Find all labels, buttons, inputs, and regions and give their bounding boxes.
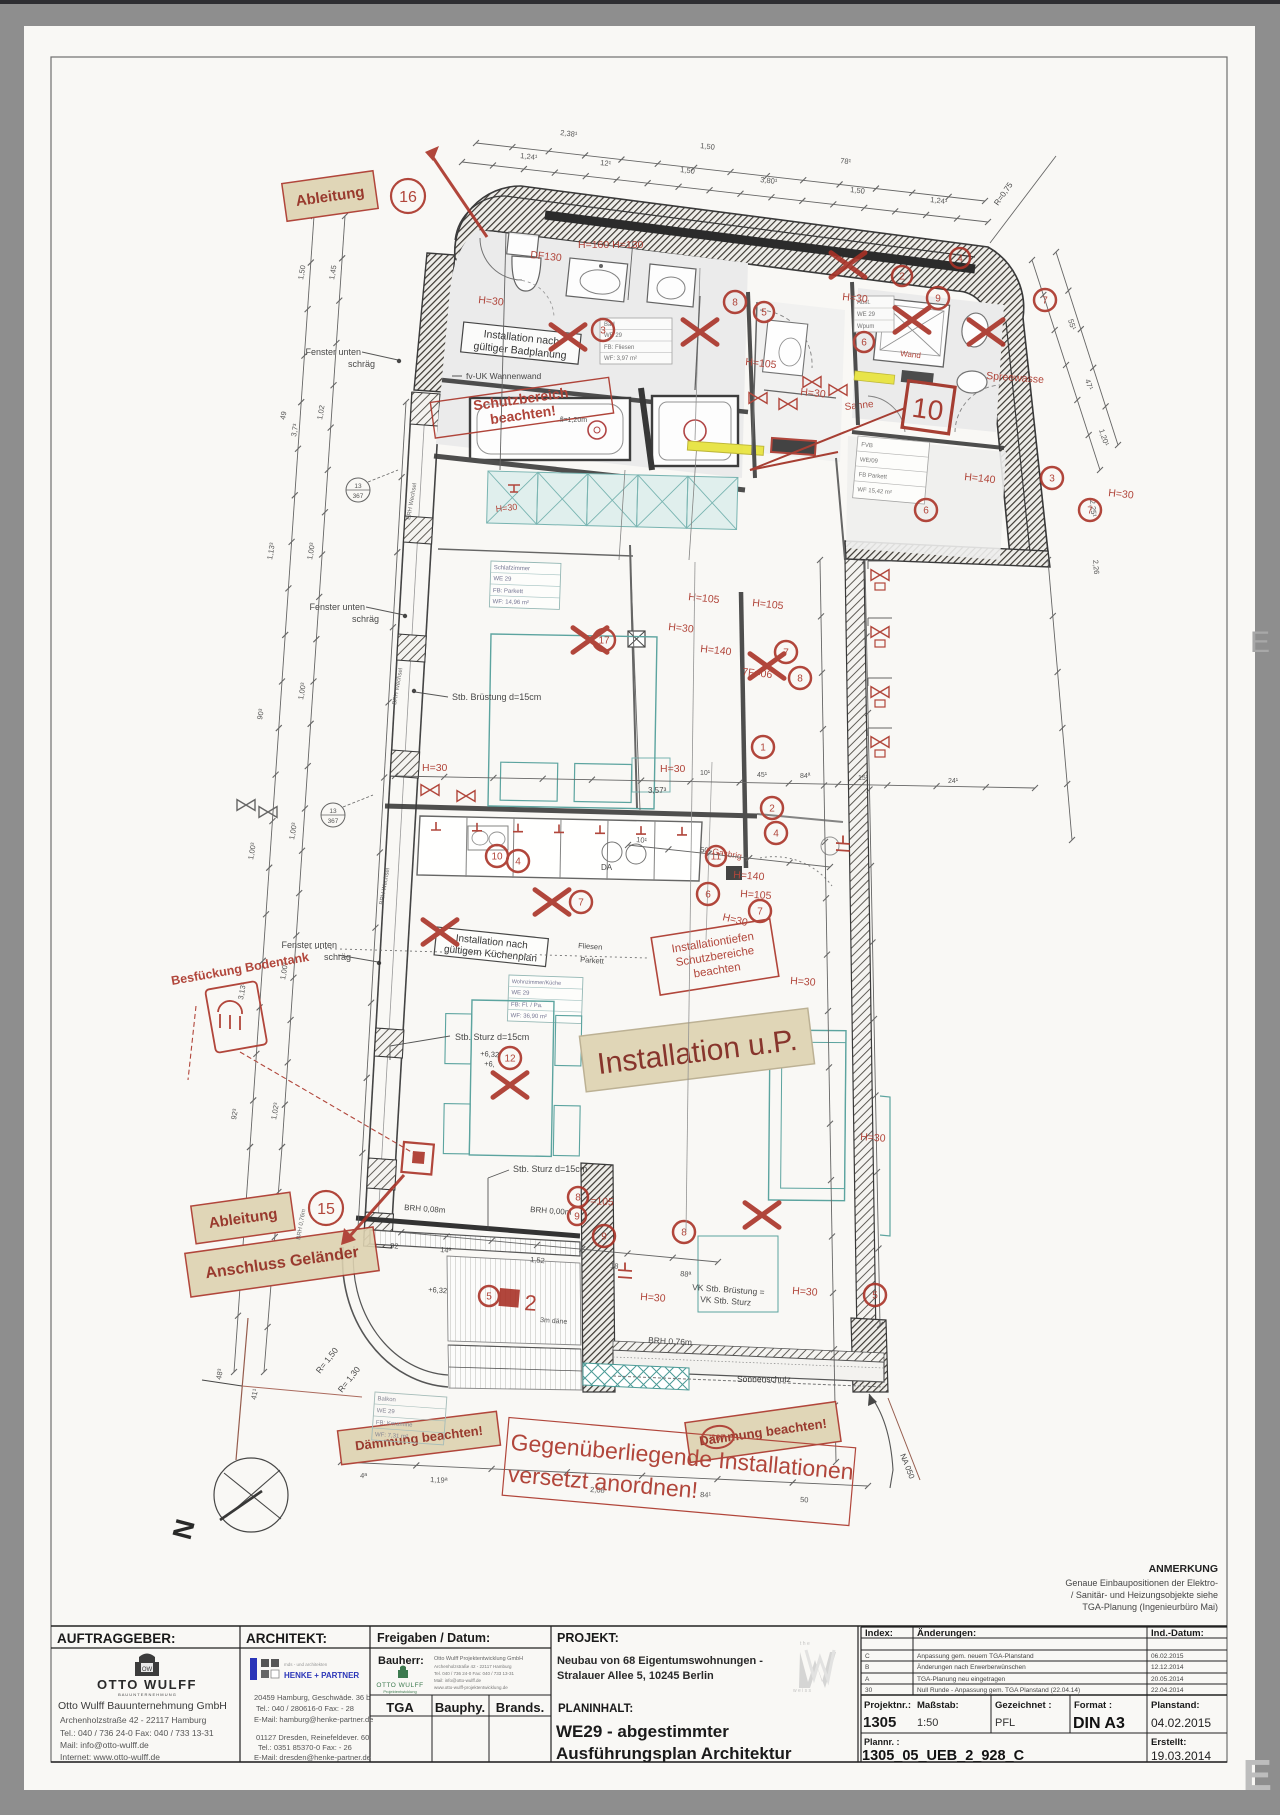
svg-text:1,50: 1,50	[700, 141, 716, 152]
svg-text:1,00³: 1,00³	[296, 681, 308, 700]
svg-text:H=160 H=130: H=160 H=130	[578, 239, 644, 251]
svg-text:1,00³: 1,00³	[246, 841, 258, 860]
svg-text:2: 2	[524, 1290, 538, 1316]
svg-text:1,50: 1,50	[680, 165, 696, 176]
svg-text:Brands.: Brands.	[496, 1700, 544, 1715]
svg-text:18: 18	[610, 1261, 619, 1271]
svg-text:1: 1	[760, 743, 766, 754]
svg-text:OW: OW	[142, 1667, 153, 1673]
svg-text:6: 6	[923, 506, 929, 517]
svg-text:DIN A3: DIN A3	[1073, 1715, 1125, 1732]
svg-text:6: 6	[705, 890, 711, 901]
svg-text:WE 29: WE 29	[511, 990, 530, 997]
svg-text:Neubau von 68 Eigentumswohnung: Neubau von 68 Eigentumswohnungen -	[557, 1655, 763, 1667]
svg-text:10¹: 10¹	[636, 835, 648, 845]
svg-text:84ª: 84ª	[800, 773, 811, 780]
svg-text:Änderungen nach Erwerberwünsch: Änderungen nach Erwerberwünschen	[917, 1663, 1026, 1671]
svg-text:FVB: FVB	[861, 442, 873, 449]
svg-text:PFL: PFL	[995, 1717, 1015, 1729]
svg-text:367: 367	[328, 818, 339, 825]
svg-text:www.otto-wulff-projektentwickl: www.otto-wulff-projektentwicklung.de	[434, 1685, 508, 1690]
svg-text:10: 10	[491, 852, 503, 863]
svg-text:H=140: H=140	[700, 643, 732, 658]
svg-text:Sonnenschutz: Sonnenschutz	[737, 1374, 791, 1384]
svg-text:H=30: H=30	[660, 763, 686, 775]
svg-text:Index:: Index:	[865, 1628, 893, 1639]
svg-text:47¹: 47¹	[1083, 378, 1095, 392]
svg-text:Ind.-Datum:: Ind.-Datum:	[1151, 1628, 1204, 1639]
svg-text:Bauherr:: Bauherr:	[378, 1655, 424, 1667]
svg-text:12¹: 12¹	[600, 158, 612, 168]
svg-text:3,80¹: 3,80¹	[760, 175, 779, 186]
svg-text:3: 3	[1049, 474, 1055, 485]
svg-text:7: 7	[783, 648, 789, 659]
svg-text:H=30: H=30	[422, 762, 448, 774]
svg-text:2: 2	[899, 272, 905, 283]
svg-text:13: 13	[354, 483, 362, 490]
svg-text:01127 Dresden, Reinefeldever.: 01127 Dresden, Reinefeldever. 60	[256, 1733, 369, 1742]
svg-text:AUFTRAGGEBER:: AUFTRAGGEBER:	[57, 1631, 176, 1646]
svg-text:PLANINHALT:: PLANINHALT:	[558, 1703, 633, 1715]
svg-text:Freigaben / Datum:: Freigaben / Datum:	[377, 1631, 490, 1645]
svg-text:E: E	[1243, 1751, 1272, 1800]
svg-text:3: 3	[600, 326, 606, 337]
svg-text:B: B	[865, 1664, 869, 1671]
svg-text:19.03.2014: 19.03.2014	[1151, 1749, 1211, 1763]
svg-text:41¹: 41¹	[249, 1388, 260, 1401]
svg-text:/ Sanitär- und Heizungsobjekte: / Sanitär- und Heizungsobjekte siehe	[1071, 1590, 1218, 1600]
svg-text:20459 Hamburg, Geschwäde. 36 b: 20459 Hamburg, Geschwäde. 36 b	[254, 1693, 370, 1702]
svg-text:OTTO WULFF: OTTO WULFF	[376, 1682, 423, 1689]
svg-text:3,57³: 3,57³	[648, 786, 667, 795]
svg-text:NA 050: NA 050	[898, 1452, 916, 1480]
svg-text:78¹: 78¹	[840, 156, 852, 166]
svg-text:Wpum: Wpum	[857, 324, 874, 330]
svg-text:WE 29: WE 29	[493, 576, 512, 583]
svg-text:DA: DA	[601, 863, 613, 872]
svg-text:Fenster unten: Fenster unten	[281, 940, 337, 950]
svg-text:Format :: Format :	[1074, 1700, 1112, 1711]
svg-text:R=0,75: R=0,75	[992, 180, 1015, 207]
svg-text:1,52: 1,52	[530, 1255, 545, 1265]
svg-text:7: 7	[578, 898, 584, 909]
svg-text:8: 8	[575, 1193, 581, 1204]
svg-text:9: 9	[574, 1212, 580, 1223]
svg-text:7: 7	[1042, 296, 1048, 307]
svg-text:15¹: 15¹	[858, 775, 869, 782]
svg-text:Ausführungsplan Architektur: Ausführungsplan Architektur	[556, 1744, 792, 1763]
svg-text:H=105: H=105	[752, 597, 784, 612]
svg-text:Archenholzstraße 42 - 22117: Archenholzstraße 42 - 22117 Hamburg	[60, 1715, 207, 1725]
svg-text:4: 4	[957, 254, 963, 265]
svg-text:45¹: 45¹	[757, 772, 768, 779]
svg-text:A: A	[865, 1676, 870, 1683]
svg-text:Planstand:: Planstand:	[1151, 1700, 1200, 1711]
svg-text:Stb. Sturz d=15cm: Stb. Sturz d=15cm	[513, 1164, 587, 1174]
svg-text:7F=06: 7F=06	[742, 666, 773, 681]
svg-text:Internet: www.otto-wulff.de: Internet: www.otto-wulff.de	[60, 1752, 160, 1762]
svg-text:24¹: 24¹	[948, 778, 959, 785]
svg-text:Stb. Sturz d=15cm: Stb. Sturz d=15cm	[455, 1032, 529, 1042]
svg-text:OTTO WULFF: OTTO WULFF	[97, 1677, 197, 1692]
svg-text:11: 11	[711, 852, 722, 863]
svg-text:88ª: 88ª	[680, 1269, 692, 1279]
svg-text:Stb. Brüstung d=15cm: Stb. Brüstung d=15cm	[452, 692, 541, 702]
svg-text:12: 12	[504, 1054, 516, 1065]
svg-text:1,02: 1,02	[315, 404, 326, 420]
svg-text:ARCHITEKT:: ARCHITEKT:	[246, 1631, 327, 1646]
svg-text:30: 30	[865, 1687, 873, 1694]
svg-text:20.05.2014: 20.05.2014	[1151, 1676, 1184, 1683]
svg-text:TGA-Planung (Ingenieurbüro Mai: TGA-Planung (Ingenieurbüro Mai)	[1082, 1602, 1218, 1612]
svg-text:Stralauer Allee 5, 10245 Berli: Stralauer Allee 5, 10245 Berlin	[557, 1670, 714, 1682]
svg-text:Parkett: Parkett	[580, 955, 605, 966]
svg-text:15: 15	[317, 1201, 335, 1218]
svg-text:10¹: 10¹	[700, 770, 711, 777]
svg-text:2: 2	[769, 804, 775, 815]
svg-text:1,24¹: 1,24¹	[930, 195, 949, 206]
svg-text:H=30: H=30	[640, 1291, 666, 1305]
svg-text:Maßstab:: Maßstab:	[917, 1700, 959, 1711]
svg-text:Schlafzimmer: Schlafzimmer	[494, 565, 531, 572]
svg-text:WE 29: WE 29	[376, 1408, 395, 1415]
svg-text:H=30: H=30	[842, 291, 869, 306]
svg-text:H=105: H=105	[688, 591, 720, 606]
svg-text:1,24¹: 1,24¹	[520, 151, 539, 162]
svg-text:9: 9	[935, 294, 941, 305]
svg-text:1,00³: 1,00³	[305, 541, 317, 560]
svg-text:Null Runde - Anpassung gem. TG: Null Runde - Anpassung gem. TGA Planstan…	[917, 1687, 1080, 1694]
svg-text:FB: Fliesen: FB: Fliesen	[604, 345, 634, 351]
svg-text:Tel.: 040 / 736 24-0 Fax: 040: Tel.: 040 / 736 24-0 Fax: 040 / 733 13-3…	[60, 1728, 214, 1738]
svg-text:Fenster unten: Fenster unten	[309, 602, 365, 612]
svg-text:92³: 92³	[229, 1108, 240, 1121]
svg-text:1,20¹: 1,20¹	[1097, 428, 1111, 448]
svg-text:06.02.2015: 06.02.2015	[1151, 1653, 1184, 1660]
svg-text:BRH Wechsel: BRH Wechsel	[392, 668, 404, 706]
svg-text:VK Stb. Sturz: VK Stb. Sturz	[700, 1294, 752, 1308]
svg-text:Archenholzstraße 42 - 22117 Ha: Archenholzstraße 42 - 22117 Hamburg	[434, 1664, 512, 1669]
svg-text:t h e: t h e	[800, 1641, 810, 1647]
svg-text:w e i s s: w e i s s	[793, 1688, 812, 1694]
svg-text:BRH 0,08m: BRH 0,08m	[404, 1203, 446, 1215]
svg-text:13: 13	[329, 808, 337, 815]
svg-text:+6,32: +6,32	[428, 1285, 448, 1295]
svg-text:BRH 0,00m: BRH 0,00m	[530, 1205, 572, 1217]
svg-text:7: 7	[1087, 506, 1093, 517]
svg-text:WF: 14,96 m²: WF: 14,96 m²	[492, 599, 529, 606]
svg-text:PROJEKT:: PROJEKT:	[557, 1631, 619, 1645]
svg-text:Projektnr.:: Projektnr.:	[864, 1700, 911, 1711]
svg-text:C: C	[865, 1653, 870, 1660]
svg-text:fl=1,20m: fl=1,20m	[560, 417, 587, 424]
svg-text:+6,32: +6,32	[480, 1049, 500, 1059]
svg-text:7: 7	[757, 907, 763, 918]
svg-text:BRH 0,76m: BRH 0,76m	[296, 1209, 307, 1241]
svg-text:fv-UK Wannenwand: fv-UK Wannenwand	[466, 371, 542, 381]
svg-text:2,26: 2,26	[1091, 559, 1101, 574]
svg-text:FB: Fl. / Pa.: FB: Fl. / Pa.	[511, 1002, 543, 1009]
svg-text:TGA-Planung neu eingetragen: TGA-Planung neu eingetragen	[917, 1676, 1006, 1683]
svg-text:1:50: 1:50	[917, 1717, 938, 1729]
svg-text:R= 1,30: R= 1,30	[336, 1364, 363, 1394]
svg-text:1,19ª: 1,19ª	[430, 1475, 448, 1485]
svg-text:Balkon: Balkon	[377, 1396, 396, 1403]
svg-text:467: 467	[710, 1433, 725, 1443]
svg-text:4ª: 4ª	[360, 1471, 368, 1480]
svg-text:1,02³: 1,02³	[269, 1101, 281, 1120]
svg-text:Mail: info@otto-wulff.de: Mail: info@otto-wulff.de	[434, 1678, 482, 1683]
svg-text:R= 1,50: R= 1,50	[314, 1345, 341, 1375]
svg-text:50: 50	[800, 1495, 809, 1504]
svg-text:H=105: H=105	[740, 888, 772, 902]
svg-text:TGA: TGA	[386, 1700, 414, 1715]
svg-text:Tel. 040 / 736 24-0 Fax: 040 /: Tel. 040 / 736 24-0 Fax: 040 / 733 13-31	[434, 1671, 515, 1676]
svg-text:H=30: H=30	[1108, 487, 1135, 502]
svg-text:8: 8	[797, 674, 803, 685]
svg-text:=105: =105	[590, 1195, 615, 1209]
svg-text:1,50: 1,50	[850, 185, 866, 196]
svg-text:92: 92	[390, 1241, 399, 1251]
svg-text:1,45: 1,45	[327, 264, 338, 280]
svg-text:Bauphy.: Bauphy.	[435, 1700, 485, 1715]
svg-text:Fliesen: Fliesen	[578, 941, 603, 952]
svg-text:1,13³: 1,13³	[265, 541, 277, 560]
svg-text:49: 49	[278, 411, 288, 421]
svg-text:Erstellt:: Erstellt:	[1151, 1737, 1186, 1748]
svg-text:schräg: schräg	[352, 614, 379, 624]
svg-text:Otto Wulff Projektentwicklung: Otto Wulff Projektentwicklung GmbH	[434, 1656, 523, 1662]
svg-text:14ª: 14ª	[440, 1245, 452, 1255]
svg-text:10: 10	[910, 392, 945, 427]
svg-text:4: 4	[773, 829, 779, 840]
svg-text:1,50: 1,50	[296, 264, 307, 280]
svg-text:WF: 3,97 m²: WF: 3,97 m²	[604, 356, 637, 362]
svg-text:6: 6	[861, 338, 867, 349]
svg-text:E: E	[1250, 626, 1270, 659]
svg-text:367: 367	[353, 493, 364, 500]
svg-text:E-Mail: dresden@henke-partner.: E-Mail: dresden@henke-partner.de	[254, 1753, 371, 1762]
svg-text:Tel.: 0351 85370-0 Fax: - 26: Tel.: 0351 85370-0 Fax: - 26	[258, 1743, 352, 1752]
svg-text:Genaue Einbaupositionen der El: Genaue Einbaupositionen der Elektro-	[1065, 1578, 1218, 1588]
svg-text:WF: 36,90 m²: WF: 36,90 m²	[510, 1013, 547, 1020]
svg-text:16: 16	[399, 189, 417, 206]
svg-text:9: 9	[601, 1232, 607, 1243]
svg-text:Mail: info@otto-wulff.de: Mail: info@otto-wulff.de	[60, 1740, 149, 1750]
svg-text:N: N	[167, 1516, 201, 1543]
svg-text:mds - und architekten: mds - und architekten	[284, 1662, 328, 1667]
svg-text:84¹: 84¹	[700, 1490, 712, 1500]
svg-text:Gezeichnet :: Gezeichnet :	[995, 1700, 1052, 1711]
svg-text:1,00³: 1,00³	[287, 821, 299, 840]
svg-text:+6,: +6,	[484, 1059, 495, 1069]
svg-text:E-Mail: hamburg@henke-partner.: E-Mail: hamburg@henke-partner.de	[254, 1715, 373, 1724]
svg-text:17: 17	[598, 636, 610, 647]
svg-text:Änderungen:: Änderungen:	[917, 1628, 976, 1639]
svg-text:48³: 48³	[214, 1368, 225, 1381]
svg-text:Tel.: 040 / 280616-0 Fax: - 28: Tel.: 040 / 280616-0 Fax: - 28	[256, 1704, 354, 1713]
svg-text:5: 5	[761, 308, 767, 319]
svg-text:BRH Wechsel: BRH Wechsel	[406, 483, 418, 521]
svg-text:5: 5	[872, 1291, 878, 1302]
svg-text:BRH Wechsel: BRH Wechsel	[379, 868, 391, 906]
svg-text:FB: Parkett: FB: Parkett	[493, 588, 524, 595]
svg-text:8: 8	[732, 298, 738, 309]
svg-text:1305: 1305	[863, 1714, 896, 1731]
svg-text:H=140: H=140	[733, 869, 765, 883]
svg-text:Anpassung gem. neuem TGA-Plans: Anpassung gem. neuem TGA-Planstand	[917, 1653, 1034, 1660]
svg-text:Projektentwicklung: Projektentwicklung	[383, 1689, 416, 1694]
svg-text:4: 4	[515, 857, 521, 868]
svg-text:schräg: schräg	[348, 359, 375, 369]
svg-text:Fenster unten: Fenster unten	[305, 347, 361, 357]
svg-text:HENKE + PARTNER: HENKE + PARTNER	[284, 1671, 359, 1680]
svg-text:H=30: H=30	[790, 975, 816, 989]
svg-text:H=30: H=30	[792, 1285, 818, 1299]
svg-text:5: 5	[486, 1292, 492, 1303]
svg-text:Otto Wulff Bauunternehmung Gmb: Otto Wulff Bauunternehmung GmbH	[58, 1700, 227, 1712]
svg-text:B A U U N T E R N E H M U N G: B A U U N T E R N E H M U N G	[118, 1692, 176, 1697]
svg-text:Plannr. :: Plannr. :	[864, 1737, 900, 1747]
svg-text:22.04.2014: 22.04.2014	[1151, 1687, 1184, 1694]
svg-text:H=30: H=30	[860, 1131, 886, 1145]
svg-text:ANMERKUNG: ANMERKUNG	[1149, 1563, 1218, 1575]
svg-text:2,38¹: 2,38¹	[560, 128, 579, 139]
svg-text:12.12.2014: 12.12.2014	[1151, 1664, 1184, 1671]
svg-text:04.02.2015: 04.02.2015	[1151, 1716, 1211, 1730]
svg-text:H=30: H=30	[668, 621, 695, 636]
svg-text:55¹: 55¹	[1066, 318, 1078, 332]
svg-text:WE29 - abgestimmter: WE29 - abgestimmter	[556, 1722, 729, 1741]
svg-text:WE 29: WE 29	[857, 312, 876, 318]
svg-text:90³: 90³	[255, 708, 266, 721]
